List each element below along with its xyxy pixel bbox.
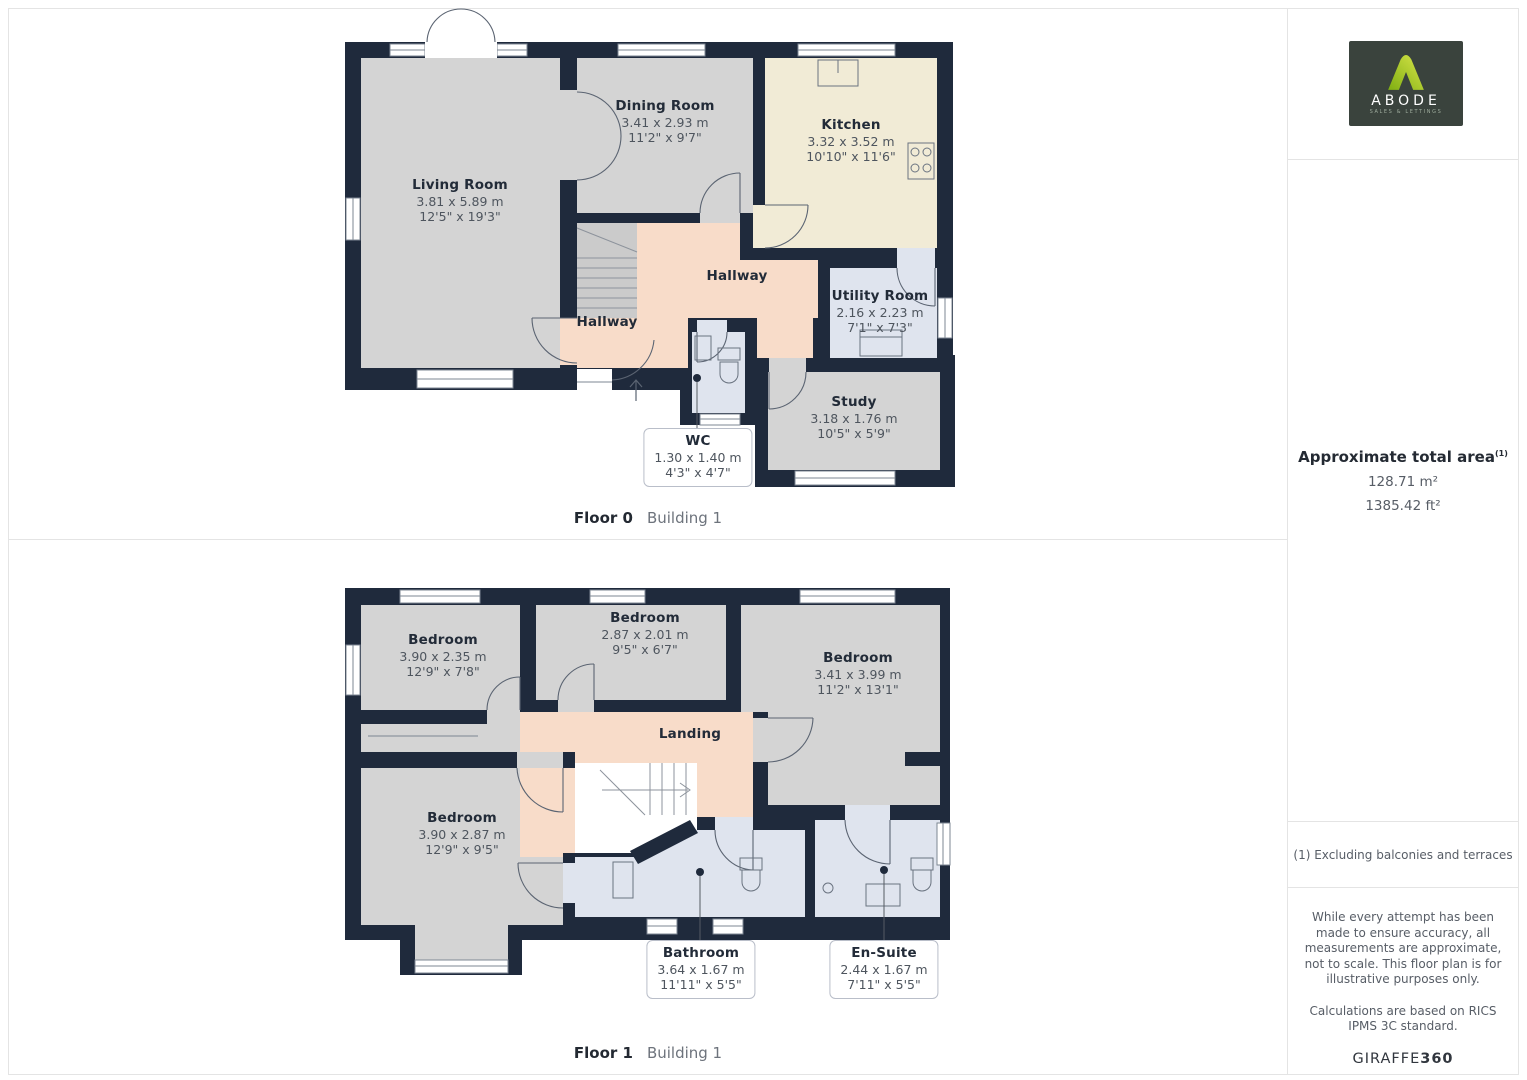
total-area-block: Approximate total area(1) 128.71 m² 1385…: [1288, 448, 1518, 514]
sidebar-footnote-panel: (1) Excluding balconies and terraces: [1287, 821, 1519, 888]
abode-a-icon: [1381, 52, 1431, 92]
footnote-marker: (1): [1495, 449, 1508, 458]
sidebar-logo-panel: ABODE SALES & LETTINGS: [1287, 8, 1519, 160]
total-area-title: Approximate total area(1): [1288, 448, 1518, 466]
giraffe360-logo: GIRAFFE360: [1288, 1051, 1518, 1067]
logo-tagline: SALES & LETTINGS: [1370, 109, 1443, 116]
agency-logo: ABODE SALES & LETTINGS: [1349, 41, 1463, 126]
floor-1-panel: [8, 539, 1288, 1075]
sidebar-disclaimer-panel: While every attempt has been made to ens…: [1287, 887, 1519, 1075]
floorplan-page: ABODE SALES & LETTINGS Approximate total…: [0, 0, 1527, 1080]
logo-brand-text: ABODE: [1371, 94, 1441, 109]
total-area-imperial: 1385.42 ft²: [1288, 498, 1518, 514]
footnote-text: (1) Excluding balconies and terraces: [1288, 822, 1518, 887]
sidebar-area-panel: Approximate total area(1) 128.71 m² 1385…: [1287, 159, 1519, 822]
disclaimer-text: While every attempt has been made to ens…: [1303, 910, 1503, 988]
standard-text: Calculations are based on RICS IPMS 3C s…: [1303, 1004, 1503, 1035]
total-area-metric: 128.71 m²: [1288, 474, 1518, 490]
floor-0-panel: [8, 8, 1288, 540]
